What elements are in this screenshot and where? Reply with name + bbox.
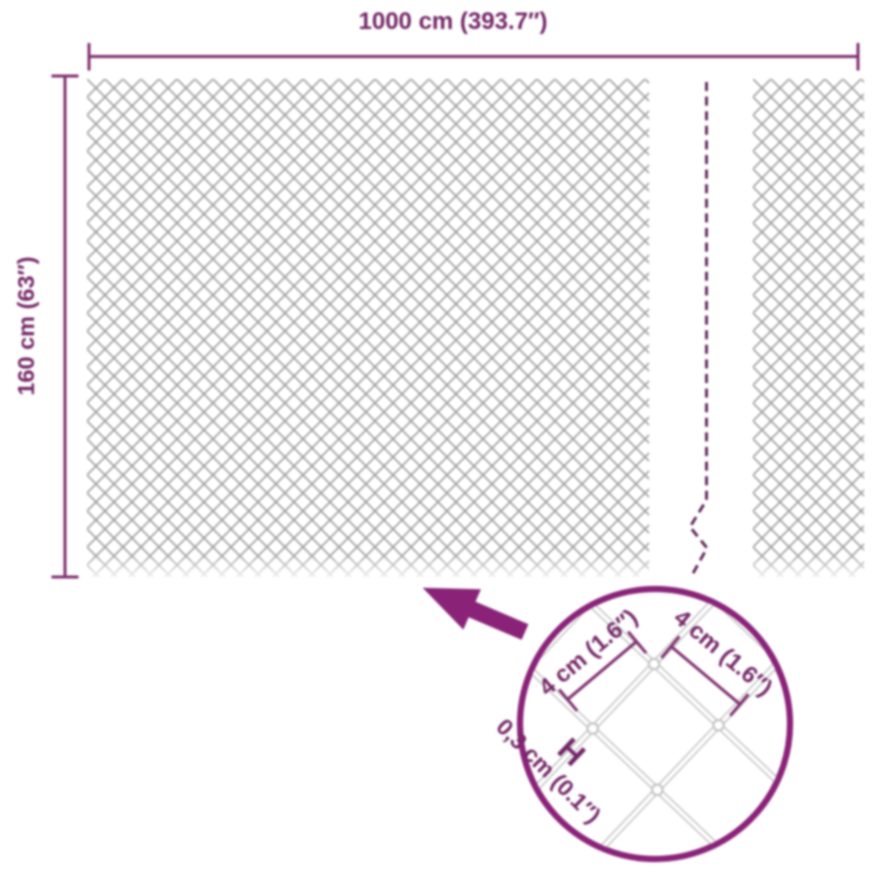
svg-text:1000 cm (393.7″): 1000 cm (393.7″) (359, 8, 548, 35)
svg-text:160 cm (63″): 160 cm (63″) (13, 256, 39, 395)
